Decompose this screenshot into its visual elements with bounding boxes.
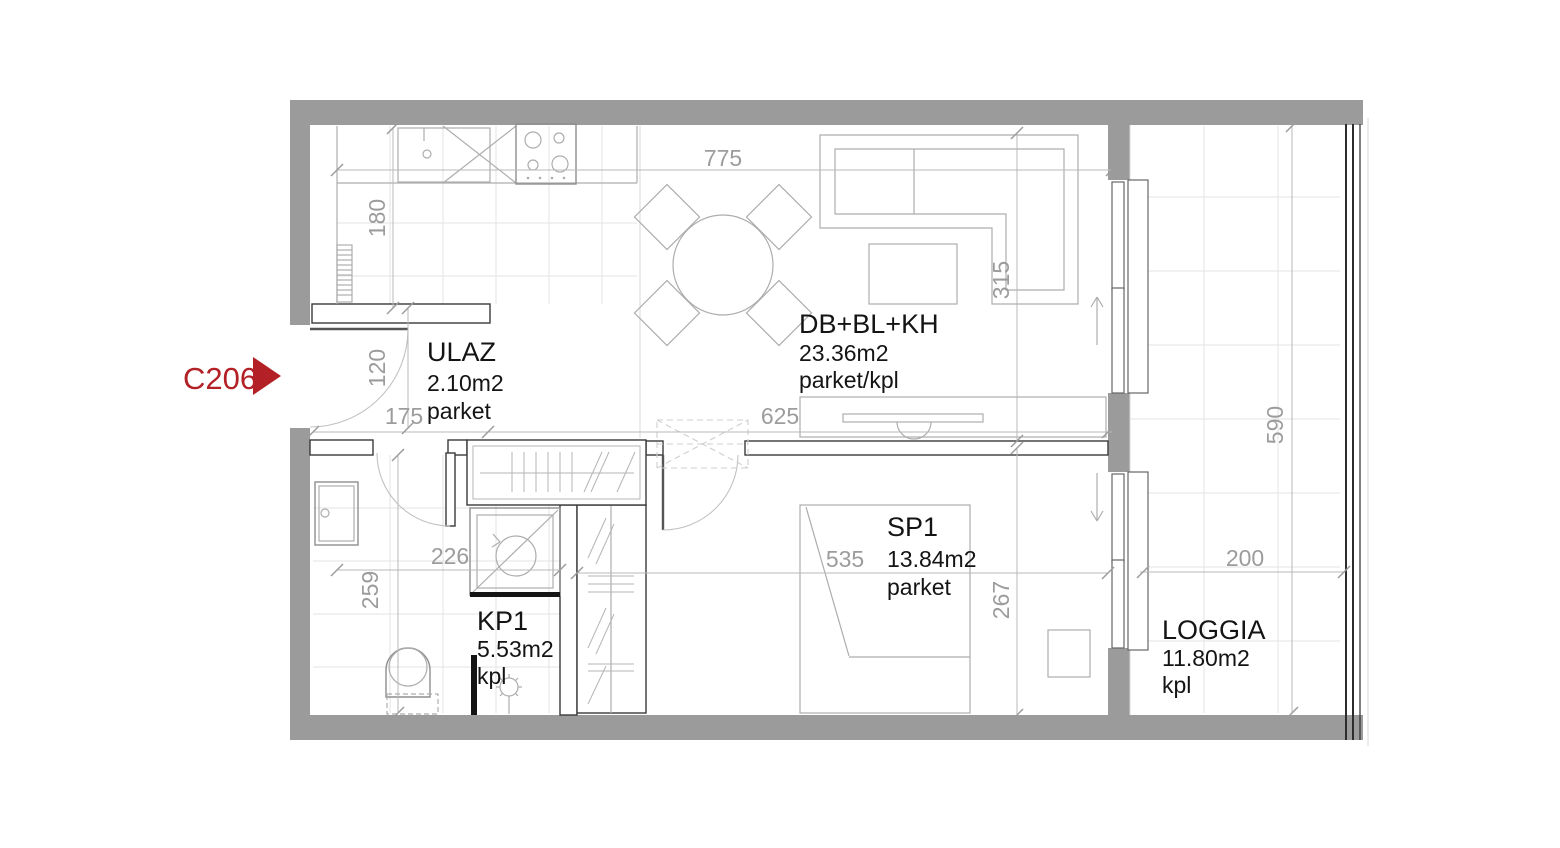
svg-text:parket: parket: [427, 398, 492, 424]
wall-left-lower: [290, 428, 310, 740]
bedroom-sliding-door: [1112, 472, 1148, 650]
entrance-arrow-icon: [253, 357, 281, 395]
wall-pier-bottom: [1108, 648, 1130, 715]
chair: [634, 184, 699, 249]
bathroom-sink: [315, 482, 358, 545]
living-sliding-door: [1112, 180, 1148, 393]
svg-text:13.84m2: 13.84m2: [887, 546, 977, 572]
unit-marker: C206: [183, 357, 281, 396]
hall-closet: [467, 440, 646, 505]
svg-text:11.80m2: 11.80m2: [1162, 645, 1250, 671]
floor-plan-canvas: 775 175 625 180 120 226 259 535 267 315 …: [0, 0, 1560, 848]
svg-text:parket: parket: [887, 574, 952, 600]
dishwasher: [443, 126, 516, 183]
toilet: [386, 648, 430, 697]
room-label-bedroom: SP1 13.84m2 parket: [887, 512, 977, 600]
svg-text:KP1: KP1: [477, 606, 528, 636]
room-label-living: DB+BL+KH 23.36m2 parket/kpl: [799, 309, 939, 393]
floor-plan-page: 775 175 625 180 120 226 259 535 267 315 …: [0, 0, 1560, 848]
svg-text:parket/kpl: parket/kpl: [799, 367, 899, 393]
bathroom-fixtures: [315, 482, 560, 715]
dim-bath-width: 226: [431, 543, 469, 569]
svg-text:SP1: SP1: [887, 512, 938, 542]
bedroom-door-jamb: [646, 441, 663, 455]
bedroom-door: [657, 420, 748, 530]
chair: [634, 280, 699, 345]
svg-text:5.53m2: 5.53m2: [477, 636, 554, 662]
dining-set: [634, 184, 811, 345]
overhead-cabinet: [657, 420, 748, 468]
slide-direction-arrows: [1091, 297, 1103, 521]
dim-entry-opening: 120: [364, 349, 390, 387]
loggia-railing: [1346, 118, 1368, 746]
svg-text:DB+BL+KH: DB+BL+KH: [799, 309, 939, 339]
kitchen-low-wall: [312, 304, 490, 323]
shower: [470, 508, 560, 597]
dim-living-bottom-width: 625: [761, 403, 799, 429]
wall-left-upper: [290, 100, 310, 325]
bed: [800, 505, 970, 713]
dim-entry-width: 175: [385, 403, 423, 429]
living-furniture: [800, 135, 1106, 439]
svg-text:kpl: kpl: [477, 663, 506, 689]
dining-table: [673, 215, 773, 315]
coffee-table: [869, 244, 957, 304]
room-label-ulaz: ULAZ 2.10m2 parket: [427, 337, 504, 424]
kitchen-sink: [398, 128, 490, 182]
stove: [516, 124, 576, 184]
dim-living-depth: 315: [988, 261, 1014, 299]
room-label-bathroom: KP1 5.53m2 kpl: [477, 606, 554, 689]
dim-top-width: 775: [704, 145, 742, 171]
bath-right-wall: [560, 505, 577, 715]
unit-code: C206: [183, 361, 257, 396]
dim-bedroom-depth: 267: [988, 581, 1014, 619]
room-label-loggia: LOGGIA 11.80m2 kpl: [1162, 615, 1266, 698]
living-bedroom-partition: [745, 441, 1108, 455]
svg-text:ULAZ: ULAZ: [427, 337, 496, 367]
radiator: [337, 245, 352, 302]
tv: [843, 414, 983, 422]
corner-sofa: [820, 135, 1078, 304]
dim-loggia-width: 200: [1226, 545, 1264, 571]
nightstand: [1048, 630, 1090, 677]
wardrobe: [577, 505, 646, 713]
dim-bedroom-width: 535: [826, 546, 864, 572]
wall-top: [290, 100, 1363, 125]
svg-text:LOGGIA: LOGGIA: [1162, 615, 1266, 645]
dim-loggia-depth: 590: [1262, 406, 1288, 444]
wall-bottom: [290, 715, 1363, 740]
bath-top-wall-left: [310, 440, 373, 455]
dim-kitchen-depth: 180: [364, 199, 390, 237]
svg-text:2.10m2: 2.10m2: [427, 370, 504, 396]
svg-text:23.36m2: 23.36m2: [799, 340, 889, 366]
chair: [746, 184, 811, 249]
svg-text:kpl: kpl: [1162, 672, 1191, 698]
tv-cabinet: [800, 397, 1106, 439]
dim-bath-depth: 259: [357, 571, 383, 609]
